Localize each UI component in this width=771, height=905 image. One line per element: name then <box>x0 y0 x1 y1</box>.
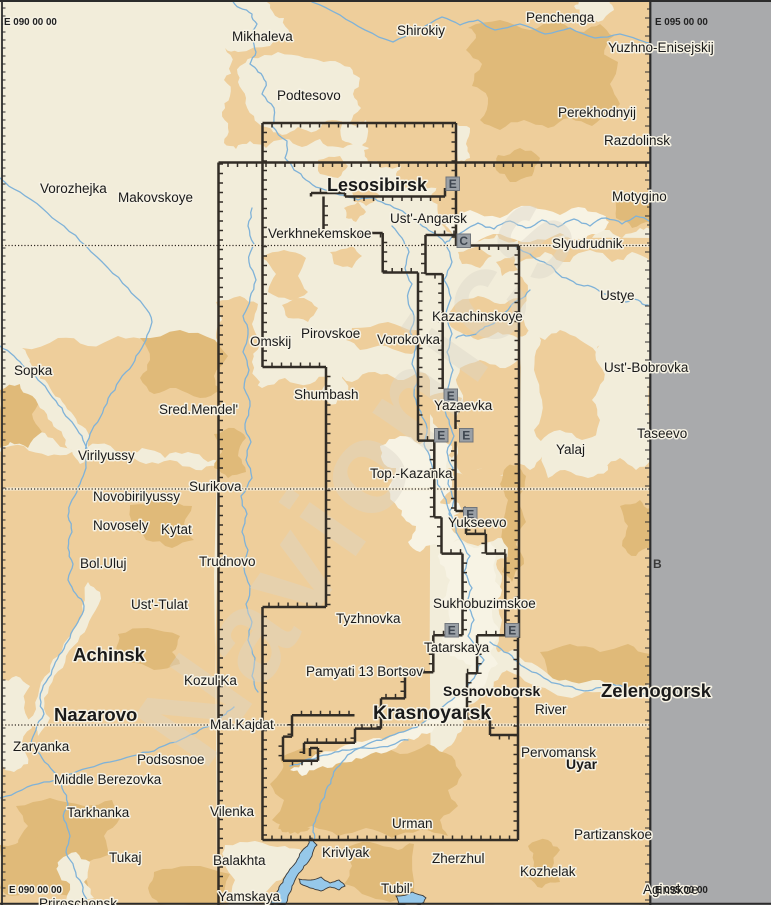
svg-text:B: B <box>653 557 662 571</box>
svg-text:Surikova: Surikova <box>189 479 242 494</box>
svg-text:Yuzhno-Enisejskij: Yuzhno-Enisejskij <box>608 40 714 55</box>
svg-text:E 090 00 00: E 090 00 00 <box>4 17 57 28</box>
svg-text:Tubil': Tubil' <box>381 881 412 896</box>
svg-text:Vilenka: Vilenka <box>210 804 255 819</box>
svg-text:E: E <box>508 623 516 637</box>
svg-text:Podtesovo: Podtesovo <box>277 88 341 103</box>
svg-text:Tarkhanka: Tarkhanka <box>67 805 130 820</box>
svg-text:E: E <box>448 623 456 637</box>
svg-text:Penchenga: Penchenga <box>526 10 595 25</box>
svg-text:Lesosibirsk: Lesosibirsk <box>327 175 428 195</box>
svg-text:Taseevo: Taseevo <box>637 426 687 441</box>
svg-text:Ust'-Bobrovka: Ust'-Bobrovka <box>604 360 689 375</box>
svg-text:Yamskaya: Yamskaya <box>218 889 281 904</box>
svg-text:Zaryanka: Zaryanka <box>13 739 70 754</box>
svg-text:Middle Berezovka: Middle Berezovka <box>54 772 162 787</box>
svg-text:Sukhobuzimskoe: Sukhobuzimskoe <box>433 596 536 611</box>
svg-text:Kozhelak: Kozhelak <box>520 864 576 879</box>
svg-text:Uyar: Uyar <box>566 756 598 772</box>
svg-text:Tatarskaya: Tatarskaya <box>424 640 490 655</box>
svg-text:Bol.Uluj: Bol.Uluj <box>80 556 127 571</box>
svg-text:Sosnovoborsk: Sosnovoborsk <box>443 683 540 699</box>
svg-text:Yazaevka: Yazaevka <box>434 398 493 413</box>
svg-text:Ust'-Tulat: Ust'-Tulat <box>131 597 188 612</box>
svg-text:Top.-Kazanka: Top.-Kazanka <box>370 466 453 481</box>
svg-text:Kazachinskoye: Kazachinskoye <box>432 309 523 324</box>
svg-text:Slyudrudnik: Slyudrudnik <box>552 236 623 251</box>
svg-text:E: E <box>437 428 445 442</box>
svg-text:Shumbash: Shumbash <box>294 387 359 402</box>
svg-text:E: E <box>462 428 470 442</box>
svg-text:Ustye: Ustye <box>600 288 635 303</box>
svg-text:E 095 00 00: E 095 00 00 <box>655 17 708 28</box>
svg-text:Perekhodnyij: Perekhodnyij <box>558 105 636 120</box>
svg-text:Balakhta: Balakhta <box>213 853 266 868</box>
svg-text:River: River <box>535 702 567 717</box>
svg-text:Mal.Kajdat: Mal.Kajdat <box>210 717 274 732</box>
svg-text:Kytat: Kytat <box>161 522 192 537</box>
svg-text:Yalaj: Yalaj <box>556 442 585 457</box>
svg-text:Novobirilyussy: Novobirilyussy <box>93 489 180 504</box>
svg-text:Tyzhnovka: Tyzhnovka <box>336 611 401 626</box>
svg-text:Podsosnoe: Podsosnoe <box>137 752 205 767</box>
svg-text:Priroschonsk: Priroschonsk <box>39 896 117 905</box>
svg-text:Nazarovo: Nazarovo <box>54 704 137 725</box>
svg-text:Omskij: Omskij <box>250 334 291 349</box>
svg-text:Vorozhejka: Vorozhejka <box>40 181 107 196</box>
svg-text:Verkhnekemskoe: Verkhnekemskoe <box>268 226 372 241</box>
svg-text:Pamyati 13 Bortsov: Pamyati 13 Bortsov <box>306 664 423 679</box>
svg-text:E: E <box>449 177 457 191</box>
svg-text:Kozul'Ka: Kozul'Ka <box>184 673 237 688</box>
svg-text:Zherzhul: Zherzhul <box>432 851 485 866</box>
svg-text:Urman: Urman <box>392 816 433 831</box>
svg-text:Pirovskoe: Pirovskoe <box>301 326 360 341</box>
svg-text:E 095 00 00: E 095 00 00 <box>655 885 708 896</box>
svg-text:Ust'-Angarsk: Ust'-Angarsk <box>390 211 467 226</box>
svg-text:Sopka: Sopka <box>14 363 53 378</box>
svg-text:Tukaj: Tukaj <box>109 850 142 865</box>
svg-text:Mikhaleva: Mikhaleva <box>232 29 293 44</box>
svg-text:C: C <box>459 234 468 248</box>
svg-text:Zelenogorsk: Zelenogorsk <box>601 680 712 701</box>
svg-text:Krivlyak: Krivlyak <box>322 845 370 860</box>
svg-text:Yukseevo: Yukseevo <box>448 515 507 530</box>
svg-text:Trudnovo: Trudnovo <box>199 554 256 569</box>
svg-text:Razdolinsk: Razdolinsk <box>604 133 670 148</box>
svg-text:Virilyussy: Virilyussy <box>78 448 135 463</box>
svg-text:E 090 00 00: E 090 00 00 <box>9 885 62 896</box>
svg-text:Vorokovka: Vorokovka <box>377 332 441 347</box>
svg-text:Partizanskoe: Partizanskoe <box>574 827 652 842</box>
svg-text:Makovskoye: Makovskoye <box>118 190 193 205</box>
svg-text:Krasnoyarsk: Krasnoyarsk <box>373 702 491 724</box>
svg-text:Novosely: Novosely <box>93 518 149 533</box>
svg-text:Motygino: Motygino <box>612 189 667 204</box>
svg-text:Achinsk: Achinsk <box>73 644 146 665</box>
svg-text:Sred.Mendel': Sred.Mendel' <box>159 402 238 417</box>
svg-text:Shirokiy: Shirokiy <box>397 23 445 38</box>
